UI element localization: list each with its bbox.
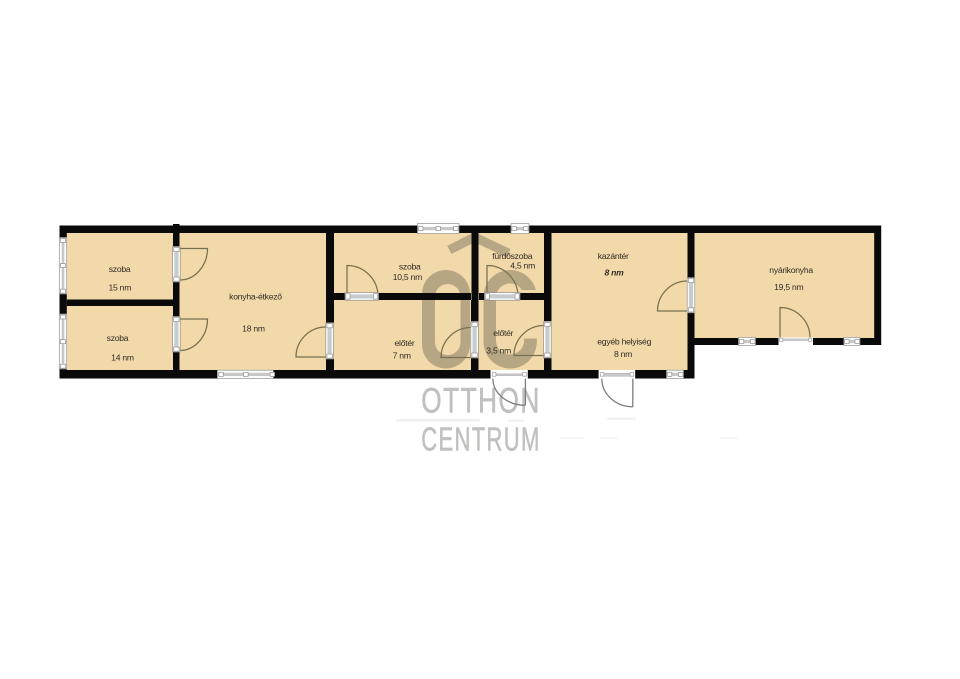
svg-text:szoba: szoba (109, 264, 131, 274)
svg-text:3,5 nm: 3,5 nm (486, 345, 511, 355)
svg-text:7 nm: 7 nm (393, 351, 411, 361)
svg-text:8 nm: 8 nm (614, 349, 632, 359)
svg-text:CENTRUM: CENTRUM (421, 421, 540, 459)
svg-text:előtér: előtér (395, 338, 415, 348)
svg-text:előtér: előtér (493, 328, 513, 338)
svg-text:OTTHON: OTTHON (421, 380, 540, 420)
svg-text:szoba: szoba (107, 333, 129, 343)
svg-text:19,5 nm: 19,5 nm (774, 282, 803, 292)
svg-text:egyéb helyiség: egyéb helyiség (597, 337, 651, 347)
svg-text:kazántér: kazántér (598, 251, 629, 261)
svg-text:szoba: szoba (399, 262, 421, 272)
svg-text:nyárikonyha: nyárikonyha (769, 265, 813, 275)
svg-text:konyha-étkező: konyha-étkező (229, 292, 282, 302)
svg-text:4,5 nm: 4,5 nm (510, 260, 535, 270)
svg-text:10,5 nm: 10,5 nm (393, 272, 422, 282)
svg-text:8 nm: 8 nm (604, 267, 624, 277)
svg-text:15 nm: 15 nm (108, 282, 131, 292)
svg-text:14 nm: 14 nm (111, 352, 134, 362)
svg-text:18 nm: 18 nm (242, 323, 265, 333)
